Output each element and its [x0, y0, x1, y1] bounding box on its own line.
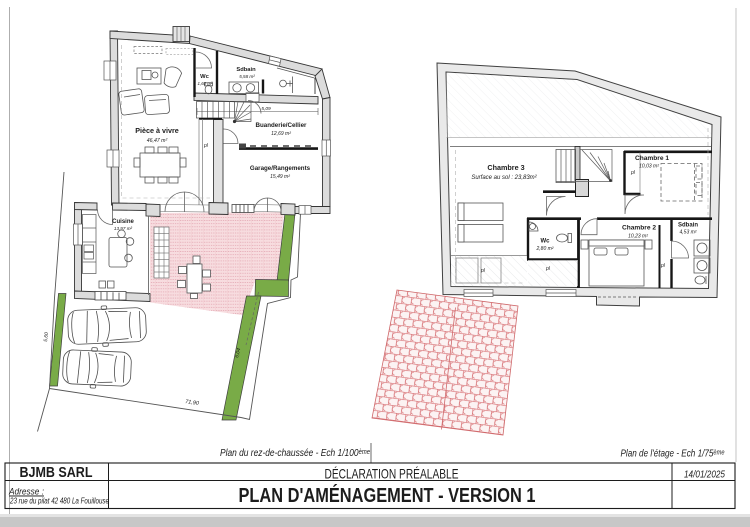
svg-text:12,69 m²: 12,69 m²	[271, 131, 291, 137]
svg-text:Cuisine: Cuisine	[112, 219, 134, 225]
svg-text:PLAN D'AMÉNAGEMENT - VERSION 1: PLAN D'AMÉNAGEMENT - VERSION 1	[239, 484, 536, 507]
svg-text:Chambre 2: Chambre 2	[622, 225, 656, 232]
svg-text:Sdbain: Sdbain	[678, 223, 698, 229]
svg-text:Wc: Wc	[200, 74, 209, 80]
svg-text:Buanderie/Cellier: Buanderie/Cellier	[256, 122, 307, 129]
svg-text:14/01/2025: 14/01/2025	[684, 469, 725, 481]
svg-text:DÉCLARATION PRÉALABLE: DÉCLARATION PRÉALABLE	[325, 466, 459, 482]
svg-text:1,60 m²: 1,60 m²	[198, 81, 213, 86]
svg-text:10,23 m²: 10,23 m²	[628, 234, 648, 240]
svg-text:Garage/Rangements: Garage/Rangements	[250, 165, 311, 172]
svg-text:Surface au sol : 23,83m²: Surface au sol : 23,83m²	[471, 175, 537, 181]
svg-text:Chambre 1: Chambre 1	[635, 155, 669, 162]
svg-text:Plan de l'étage - Ech 1/75ème: Plan de l'étage - Ech 1/75ème	[621, 449, 725, 460]
svg-text:4,53 m²: 4,53 m²	[680, 230, 697, 236]
svg-text:Plan du rez-de-chaussée - Ech: Plan du rez-de-chaussée - Ech 1/100ème	[220, 448, 370, 459]
svg-text:10,03 m²: 10,03 m²	[639, 164, 659, 170]
svg-text:46,47 m²: 46,47 m²	[147, 138, 168, 144]
svg-text:13,97 m²: 13,97 m²	[114, 226, 133, 231]
svg-text:15,49 m²: 15,49 m²	[270, 174, 290, 180]
svg-text:Wc: Wc	[541, 239, 551, 245]
svg-text:Sdbain: Sdbain	[236, 67, 256, 73]
svg-text:Pièce à vivre: Pièce à vivre	[135, 126, 179, 135]
svg-text:Chambre 3: Chambre 3	[487, 163, 524, 172]
svg-text:BJMB SARL: BJMB SARL	[20, 464, 93, 481]
svg-text:2,80 m²: 2,80 m²	[536, 246, 554, 252]
svg-text:5,60: 5,60	[43, 332, 50, 343]
svg-text:23 rue du pilat 42 480 La Foui: 23 rue du pilat 42 480 La Fouillouse	[9, 497, 109, 506]
svg-text:5,58 m²: 5,58 m²	[239, 74, 255, 79]
svg-text:5,09: 5,09	[261, 106, 271, 112]
